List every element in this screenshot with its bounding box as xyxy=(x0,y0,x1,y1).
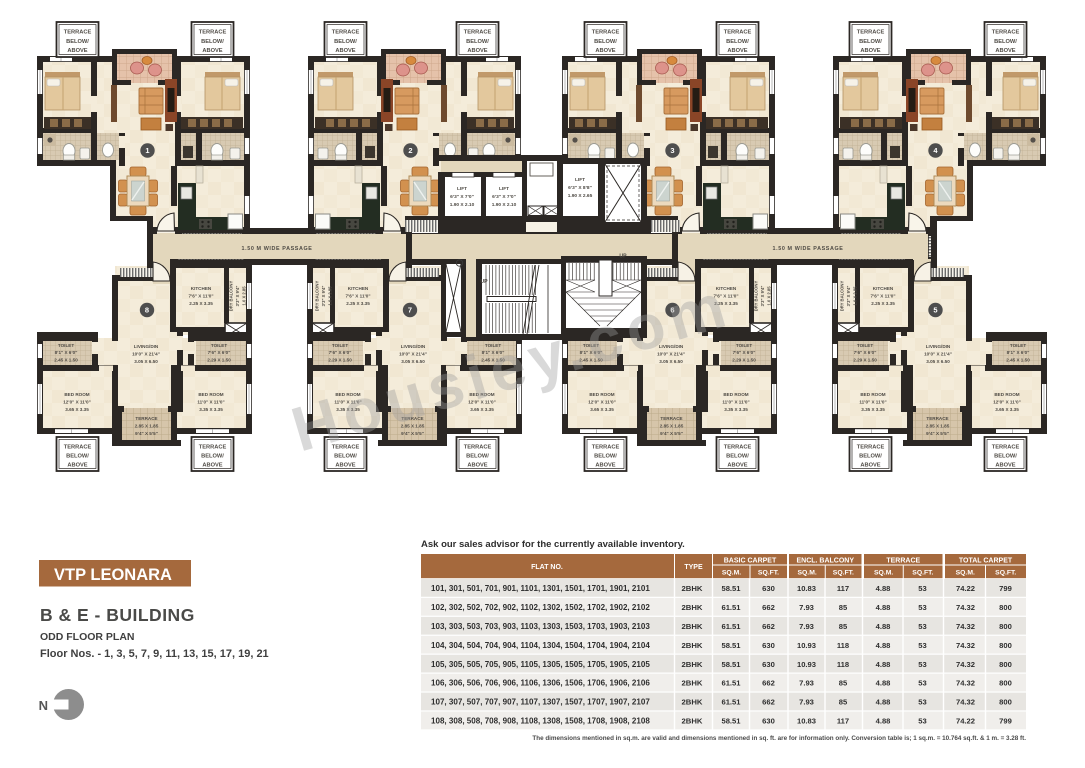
svg-text:4.88: 4.88 xyxy=(876,584,891,593)
svg-text:Ask our sales advisor for the: Ask our sales advisor for the currently … xyxy=(421,539,685,550)
svg-text:ODD FLOOR PLAN: ODD FLOOR PLAN xyxy=(40,631,135,643)
svg-text:TERRACE2.85 X 1.859’4" X 5’5": TERRACE2.85 X 1.859’4" X 5’5" xyxy=(926,416,950,436)
svg-text:85: 85 xyxy=(839,698,848,707)
svg-text:74.32: 74.32 xyxy=(956,698,975,707)
svg-text:800: 800 xyxy=(999,641,1012,650)
svg-text:TERRACEBELOW/ABOVE: TERRACEBELOW/ABOVE xyxy=(199,445,227,469)
svg-text:630: 630 xyxy=(762,660,775,669)
svg-text:1: 1 xyxy=(145,146,149,155)
svg-text:74.32: 74.32 xyxy=(956,679,975,688)
svg-text:10.83: 10.83 xyxy=(797,717,816,726)
svg-text:800: 800 xyxy=(999,698,1012,707)
svg-text:2BHK: 2BHK xyxy=(682,717,703,726)
svg-text:58.51: 58.51 xyxy=(721,641,741,650)
svg-text:106, 306, 506, 706, 906, 1106,: 106, 306, 506, 706, 906, 1106, 1306, 150… xyxy=(431,679,650,688)
svg-text:118: 118 xyxy=(837,660,849,669)
svg-text:4.88: 4.88 xyxy=(876,717,891,726)
svg-text:5: 5 xyxy=(933,306,937,315)
svg-text:LIVING/DIN10’0" X 21’4"3.05 X: LIVING/DIN10’0" X 21’4"3.05 X 6.50 xyxy=(924,344,952,364)
svg-text:2: 2 xyxy=(408,146,412,155)
svg-text:2BHK: 2BHK xyxy=(682,698,703,707)
svg-text:TOTAL CARPET: TOTAL CARPET xyxy=(959,558,1013,565)
svg-text:53: 53 xyxy=(918,679,926,688)
svg-text:74.32: 74.32 xyxy=(956,660,975,669)
svg-text:7.93: 7.93 xyxy=(799,698,814,707)
svg-text:800: 800 xyxy=(999,603,1012,612)
svg-text:N: N xyxy=(39,698,48,713)
svg-text:TERRACEBELOW/ABOVE: TERRACEBELOW/ABOVE xyxy=(64,445,92,469)
svg-text:118: 118 xyxy=(837,641,849,650)
svg-text:662: 662 xyxy=(762,698,775,707)
svg-text:61.51: 61.51 xyxy=(721,622,741,631)
svg-text:TERRACEBELOW/ABOVE: TERRACEBELOW/ABOVE xyxy=(857,445,885,469)
svg-text:TERRACEBELOW/ABOVE: TERRACEBELOW/ABOVE xyxy=(724,30,752,55)
svg-text:SQ.FT.: SQ.FT. xyxy=(995,570,1016,577)
svg-text:61.51: 61.51 xyxy=(721,603,741,612)
svg-text:4.88: 4.88 xyxy=(876,660,891,669)
svg-text:TERRACEBELOW/ABOVE: TERRACEBELOW/ABOVE xyxy=(199,30,227,55)
svg-text:SQ.M.: SQ.M. xyxy=(874,570,893,577)
svg-text:VTP LEONARA: VTP LEONARA xyxy=(54,566,172,584)
svg-text:61.51: 61.51 xyxy=(721,698,741,707)
svg-text:TERRACEBELOW/ABOVE: TERRACEBELOW/ABOVE xyxy=(992,30,1020,55)
svg-text:74.32: 74.32 xyxy=(956,622,975,631)
svg-text:10.83: 10.83 xyxy=(797,584,816,593)
svg-text:4.88: 4.88 xyxy=(876,622,891,631)
svg-text:85: 85 xyxy=(839,679,848,688)
svg-text:7.93: 7.93 xyxy=(799,603,814,612)
svg-text:TERRACEBELOW/ABOVE: TERRACEBELOW/ABOVE xyxy=(464,445,492,469)
svg-text:SQ.M.: SQ.M. xyxy=(722,570,741,577)
svg-text:UP: UP xyxy=(480,279,488,285)
svg-text:800: 800 xyxy=(999,679,1012,688)
svg-text:SQ.FT.: SQ.FT. xyxy=(912,570,933,577)
svg-text:53: 53 xyxy=(918,698,926,707)
svg-text:7: 7 xyxy=(408,306,412,315)
svg-text:TERRACEBELOW/ABOVE: TERRACEBELOW/ABOVE xyxy=(992,445,1020,469)
svg-text:LIVING/DIN10’0" X 21’4"3.05 X: LIVING/DIN10’0" X 21’4"3.05 X 6.50 xyxy=(132,344,160,364)
svg-text:61.51: 61.51 xyxy=(721,679,741,688)
svg-text:1.50 M WIDE PASSAGE: 1.50 M WIDE PASSAGE xyxy=(773,246,844,252)
svg-text:BED ROOM12’0" X 11’0"3.65 X 3.: BED ROOM12’0" X 11’0"3.65 X 3.35 xyxy=(63,392,91,412)
svg-text:74.22: 74.22 xyxy=(956,717,975,726)
svg-text:BED ROOM11’0" X 11’0"3.35 X 3.: BED ROOM11’0" X 11’0"3.35 X 3.35 xyxy=(859,392,886,412)
svg-text:ENCL. BALCONY: ENCL. BALCONY xyxy=(796,558,854,565)
svg-text:SQ.FT.: SQ.FT. xyxy=(758,570,779,577)
svg-text:630: 630 xyxy=(762,641,775,650)
svg-text:104, 304, 504, 704, 904, 1104,: 104, 304, 504, 704, 904, 1104, 1304, 150… xyxy=(431,641,650,650)
svg-text:799: 799 xyxy=(999,584,1012,593)
svg-text:107, 307, 507, 707, 907, 1107,: 107, 307, 507, 707, 907, 1107, 1307, 150… xyxy=(431,698,650,707)
svg-text:The dimensions mentioned in sq: The dimensions mentioned in sq.m. are va… xyxy=(532,735,1026,742)
svg-text:2BHK: 2BHK xyxy=(682,622,703,631)
svg-text:4.88: 4.88 xyxy=(876,603,891,612)
svg-text:KITCHEN7’6" X 11’0"2.25 X 3.35: KITCHEN7’6" X 11’0"2.25 X 3.35 xyxy=(345,286,370,306)
svg-text:105, 305, 505, 705, 905, 1105,: 105, 305, 505, 705, 905, 1105, 1305, 150… xyxy=(431,660,650,669)
svg-text:53: 53 xyxy=(918,717,926,726)
svg-text:B & E - BUILDING: B & E - BUILDING xyxy=(40,605,195,625)
svg-text:UP: UP xyxy=(619,254,627,260)
svg-text:662: 662 xyxy=(762,603,775,612)
svg-text:BED ROOM12’0" X 11’0"3.65 X 3.: BED ROOM12’0" X 11’0"3.65 X 3.35 xyxy=(588,392,616,412)
svg-text:SQ.M.: SQ.M. xyxy=(797,570,816,577)
svg-text:74.22: 74.22 xyxy=(956,584,975,593)
svg-text:74.32: 74.32 xyxy=(956,603,975,612)
svg-text:662: 662 xyxy=(762,622,775,631)
svg-text:800: 800 xyxy=(999,622,1012,631)
svg-text:BED ROOM12’0" X 11’0"3.65 X 3.: BED ROOM12’0" X 11’0"3.65 X 3.35 xyxy=(993,392,1021,412)
svg-text:2BHK: 2BHK xyxy=(682,603,703,612)
svg-text:Floor Nos. - 1, 3, 5, 7, 9, 11: Floor Nos. - 1, 3, 5, 7, 9, 11, 13, 15, … xyxy=(40,648,269,660)
svg-text:58.51: 58.51 xyxy=(721,660,741,669)
svg-text:8: 8 xyxy=(145,306,149,315)
svg-text:TERRACEBELOW/ABOVE: TERRACEBELOW/ABOVE xyxy=(592,30,620,55)
svg-text:102, 302, 502, 702, 902, 1102,: 102, 302, 502, 702, 902, 1102, 1302, 150… xyxy=(431,603,650,612)
svg-text:3: 3 xyxy=(670,146,674,155)
svg-text:SQ.FT.: SQ.FT. xyxy=(833,570,854,577)
svg-text:TERRACEBELOW/ABOVE: TERRACEBELOW/ABOVE xyxy=(857,30,885,55)
svg-text:7.93: 7.93 xyxy=(799,679,814,688)
svg-text:103, 303, 503, 703, 903, 1103,: 103, 303, 503, 703, 903, 1103, 1303, 150… xyxy=(431,622,650,631)
svg-text:TERRACEBELOW/ABOVE: TERRACEBELOW/ABOVE xyxy=(592,445,620,469)
svg-text:TERRACEBELOW/ABOVE: TERRACEBELOW/ABOVE xyxy=(332,30,360,55)
svg-text:TERRACEBELOW/ABOVE: TERRACEBELOW/ABOVE xyxy=(464,30,492,55)
svg-text:58.51: 58.51 xyxy=(721,584,741,593)
svg-text:4.88: 4.88 xyxy=(876,679,891,688)
svg-text:BED ROOM11’0" X 11’0"3.35 X 3.: BED ROOM11’0" X 11’0"3.35 X 3.35 xyxy=(197,392,224,412)
svg-text:662: 662 xyxy=(762,679,775,688)
svg-text:2BHK: 2BHK xyxy=(682,660,703,669)
svg-text:TERRACE2.85 X 1.859’4" X 5’5": TERRACE2.85 X 1.859’4" X 5’5" xyxy=(660,416,684,436)
svg-text:SQ.M.: SQ.M. xyxy=(956,570,975,577)
svg-text:BASIC CARPET: BASIC CARPET xyxy=(724,558,777,565)
svg-text:2BHK: 2BHK xyxy=(682,641,703,650)
svg-text:BED ROOM11’0" X 11’0"3.35 X 3.: BED ROOM11’0" X 11’0"3.35 X 3.35 xyxy=(722,392,749,412)
svg-text:53: 53 xyxy=(918,641,926,650)
svg-text:53: 53 xyxy=(918,603,926,612)
svg-text:2BHK: 2BHK xyxy=(682,584,703,593)
svg-text:TYPE: TYPE xyxy=(684,564,703,571)
svg-text:10.93: 10.93 xyxy=(797,660,816,669)
svg-text:KITCHEN7’6" X 11’0"2.25 X 3.35: KITCHEN7’6" X 11’0"2.25 X 3.35 xyxy=(188,286,213,306)
svg-text:101, 301, 501, 701, 901, 1101,: 101, 301, 501, 701, 901, 1101, 1301, 150… xyxy=(431,584,650,593)
svg-text:799: 799 xyxy=(999,717,1012,726)
svg-text:10.93: 10.93 xyxy=(797,641,816,650)
svg-text:630: 630 xyxy=(762,584,775,593)
svg-text:117: 117 xyxy=(837,584,849,593)
svg-text:58.51: 58.51 xyxy=(721,717,741,726)
svg-text:7.93: 7.93 xyxy=(799,622,814,631)
svg-text:TERRACEBELOW/ABOVE: TERRACEBELOW/ABOVE xyxy=(724,445,752,469)
svg-text:4.88: 4.88 xyxy=(876,641,891,650)
svg-text:108, 308, 508, 708, 908, 1108,: 108, 308, 508, 708, 908, 1108, 1308, 150… xyxy=(431,717,650,726)
svg-text:TERRACEBELOW/ABOVE: TERRACEBELOW/ABOVE xyxy=(64,30,92,55)
svg-text:800: 800 xyxy=(999,660,1012,669)
svg-text:4.88: 4.88 xyxy=(876,698,891,707)
svg-text:85: 85 xyxy=(839,622,848,631)
svg-text:1.50 M WIDE PASSAGE: 1.50 M WIDE PASSAGE xyxy=(242,246,313,252)
svg-text:FLAT NO.: FLAT NO. xyxy=(531,564,563,571)
svg-text:TERRACE: TERRACE xyxy=(886,558,920,565)
svg-text:53: 53 xyxy=(918,584,926,593)
svg-text:117: 117 xyxy=(837,717,849,726)
svg-text:85: 85 xyxy=(839,603,848,612)
svg-text:630: 630 xyxy=(762,717,775,726)
svg-text:KITCHEN7’6" X 11’0"2.25 X 3.35: KITCHEN7’6" X 11’0"2.25 X 3.35 xyxy=(870,286,895,306)
svg-text:74.32: 74.32 xyxy=(956,641,975,650)
svg-text:2BHK: 2BHK xyxy=(682,679,703,688)
svg-text:53: 53 xyxy=(918,622,926,631)
svg-text:53: 53 xyxy=(918,660,926,669)
svg-text:TERRACE2.85 X 1.859’4" X 5’5": TERRACE2.85 X 1.859’4" X 5’5" xyxy=(135,416,159,436)
